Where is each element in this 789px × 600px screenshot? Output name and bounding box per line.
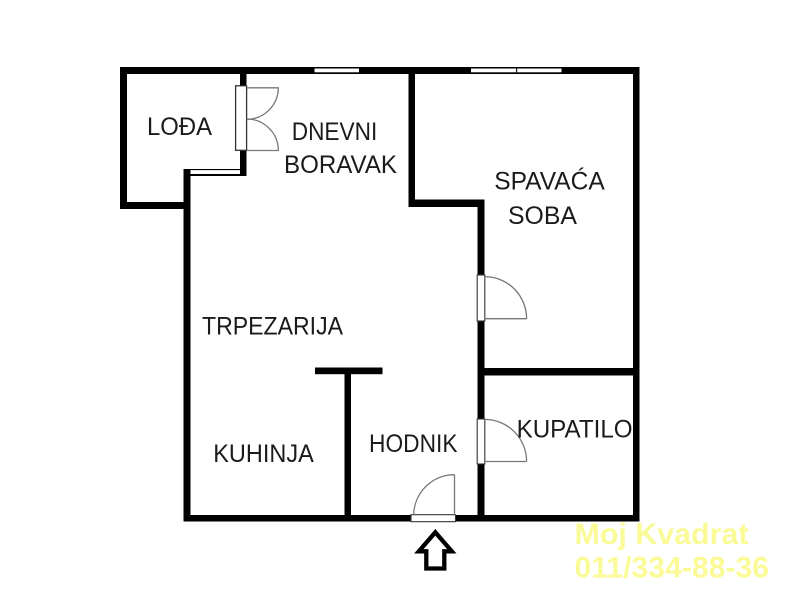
svg-text:Moj Kvadrat: Moj Kvadrat [575, 518, 749, 551]
svg-text:BORAVAK: BORAVAK [284, 151, 397, 179]
svg-text:SPAVAĆA: SPAVAĆA [494, 167, 605, 196]
svg-text:DNEVNI: DNEVNI [292, 118, 378, 146]
svg-text:KUHINJA: KUHINJA [213, 440, 314, 468]
svg-text:011/334-88-36: 011/334-88-36 [575, 551, 770, 584]
svg-text:KUPATILO: KUPATILO [517, 415, 633, 443]
svg-text:SOBA: SOBA [508, 202, 577, 230]
svg-text:HODNIK: HODNIK [369, 430, 458, 458]
svg-text:TRPEZARIJA: TRPEZARIJA [202, 313, 343, 341]
svg-text:LOĐA: LOĐA [147, 113, 212, 141]
